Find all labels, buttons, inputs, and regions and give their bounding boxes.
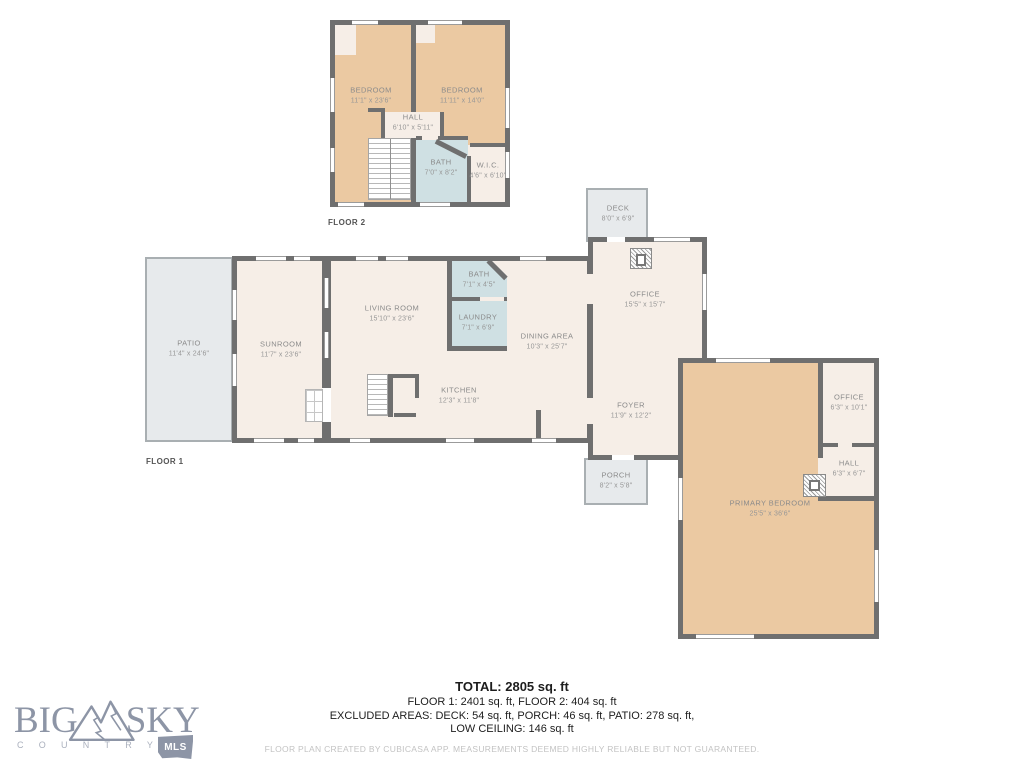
room-name: W.I.C. [470, 160, 507, 171]
room-label-office: OFFICE 15'5" x 15'7" [625, 289, 666, 310]
door-icon [305, 389, 323, 422]
window-marker [874, 550, 879, 602]
wall [447, 346, 507, 351]
room-dims: 4'6" x 6'10" [470, 171, 507, 181]
room-dims: 11'7" x 23'6" [260, 350, 302, 360]
window-marker [520, 256, 546, 261]
window-marker [428, 20, 462, 25]
fireplace-firebox [636, 254, 646, 266]
wall [381, 112, 385, 138]
room-label-hall-f1: HALL 6'3" x 6'7" [833, 458, 866, 479]
room-dims: 7'1" x 4'5" [463, 280, 496, 290]
window-marker [716, 358, 770, 363]
room-label-deck: DECK 8'0" x 6'9" [602, 203, 635, 224]
room-dims: 7'0" x 8'2" [425, 168, 458, 178]
room-name: BEDROOM [440, 85, 484, 96]
window-marker [232, 354, 237, 386]
room-name: DINING AREA [521, 331, 574, 342]
window-marker [505, 88, 510, 128]
window-marker [298, 438, 314, 443]
floor2-notch [335, 25, 356, 55]
floor2-label: FLOOR 2 [328, 218, 365, 227]
wall [470, 143, 505, 147]
room-name: BATH [425, 157, 458, 168]
door-opening [612, 455, 634, 460]
room-name: BATH [463, 269, 496, 280]
room-name: LAUNDRY [459, 312, 498, 323]
logo-country: COUNTRY [17, 740, 153, 750]
room-label-hall-f2: HALL 6'10" x 5'11" [393, 112, 433, 133]
room-label-laundry: LAUNDRY 7'1" x 6'9" [459, 312, 498, 333]
window-marker [350, 438, 370, 443]
room-dims: 6'3" x 6'7" [833, 469, 866, 479]
room-name: LIVING ROOM [365, 303, 419, 314]
room-name: HALL [393, 112, 433, 123]
room-label-kitchen: KITCHEN 12'3" x 11'8" [439, 385, 479, 406]
room-label-bedroom-left: BEDROOM 11'1" x 23'6" [350, 85, 392, 106]
room-dims: 11'4" x 24'6" [169, 349, 209, 359]
window-marker [532, 438, 556, 443]
room-label-foyer: FOYER 11'9" x 12'2" [611, 400, 651, 421]
wall [394, 413, 416, 417]
room-dims: 6'3" x 10'1" [831, 403, 868, 413]
room-label-bath-f2: BATH 7'0" x 8'2" [425, 157, 458, 178]
room-name: PRIMARY BEDROOM [730, 498, 811, 509]
room-label-bedroom-right: BEDROOM 11'11" x 14'0" [440, 85, 484, 106]
window-marker [232, 290, 237, 320]
stairs-icon [367, 374, 388, 416]
wall [388, 374, 393, 417]
room-dims: 11'11" x 14'0" [440, 96, 484, 106]
floor2-notch [415, 25, 435, 43]
room-label-dining-area: DINING AREA 10'3" x 25'7" [521, 331, 574, 352]
room-dims: 10'3" x 25'7" [521, 342, 574, 352]
room-name: PATIO [169, 338, 209, 349]
room-name: OFFICE [625, 289, 666, 300]
room-label-office-small: OFFICE 6'3" x 10'1" [831, 392, 868, 413]
door-opening [322, 388, 331, 422]
window-marker [324, 278, 329, 308]
room-name: FOYER [611, 400, 651, 411]
room-dims: 6'10" x 5'11" [393, 123, 433, 133]
big-sky-country-mls-logo: BIG SKY COUNTRY MLS [14, 699, 214, 763]
window-marker [678, 478, 683, 520]
window-marker [352, 20, 378, 25]
room-label-living-room: LIVING ROOM 15'10" x 23'6" [365, 303, 419, 324]
window-marker [386, 256, 408, 261]
logo-sky: SKY [126, 703, 200, 739]
wall [415, 378, 419, 398]
wall [820, 496, 877, 501]
room-label-primary-bedroom: PRIMARY BEDROOM 25'5" x 36'6" [730, 498, 811, 519]
door-opening [587, 398, 594, 424]
room-dims: 25'5" x 36'6" [730, 509, 811, 519]
window-marker [254, 438, 284, 443]
room-name: DECK [602, 203, 635, 214]
room-dims: 15'10" x 23'6" [365, 314, 419, 324]
window-marker [324, 332, 329, 358]
room-label-porch: PORCH 8'2" x 5'8" [600, 470, 633, 491]
logo-wordmark: BIG SKY [14, 699, 214, 739]
room-name: KITCHEN [439, 385, 479, 396]
window-marker [420, 202, 450, 207]
window-marker [654, 237, 690, 242]
door-opening [607, 237, 625, 242]
room-label-sunroom: SUNROOM 11'7" x 23'6" [260, 339, 302, 360]
room-name: PORCH [600, 470, 633, 481]
room-label-wic: W.I.C. 4'6" x 6'10" [470, 160, 507, 181]
window-marker [446, 438, 474, 443]
window-marker [702, 274, 707, 310]
window-marker [330, 148, 335, 172]
window-marker [356, 256, 378, 261]
mls-badge-text: MLS [164, 742, 187, 753]
door-opening [587, 274, 594, 304]
window-marker [338, 202, 364, 207]
floor1-label: FLOOR 1 [146, 457, 183, 466]
room-dims: 8'0" x 6'9" [602, 214, 635, 224]
window-marker [696, 634, 754, 639]
room-name: OFFICE [831, 392, 868, 403]
wall [411, 25, 416, 112]
room-label-patio: PATIO 11'4" x 24'6" [169, 338, 209, 359]
room-dims: 11'1" x 23'6" [350, 96, 392, 106]
window-marker [294, 256, 310, 261]
window-marker [256, 256, 286, 261]
room-dims: 7'1" x 6'9" [459, 323, 498, 333]
room-name: SUNROOM [260, 339, 302, 350]
room-label-bath-f1: BATH 7'1" x 4'5" [463, 269, 496, 290]
fireplace-firebox [809, 480, 820, 491]
room-name: HALL [833, 458, 866, 469]
stairs-icon [368, 138, 411, 200]
room-dims: 15'5" x 15'7" [625, 300, 666, 310]
wall [368, 108, 385, 112]
room-dims: 11'9" x 12'2" [611, 411, 651, 421]
mls-badge: MLS [158, 735, 193, 759]
room-dims: 12'3" x 11'8" [439, 396, 479, 406]
room-dims: 8'2" x 5'8" [600, 481, 633, 491]
room-name: BEDROOM [350, 85, 392, 96]
floor-plan-page: FLOOR 2 [0, 0, 1024, 768]
total-area: TOTAL: 2805 sq. ft [0, 679, 1024, 694]
window-marker [330, 78, 335, 112]
